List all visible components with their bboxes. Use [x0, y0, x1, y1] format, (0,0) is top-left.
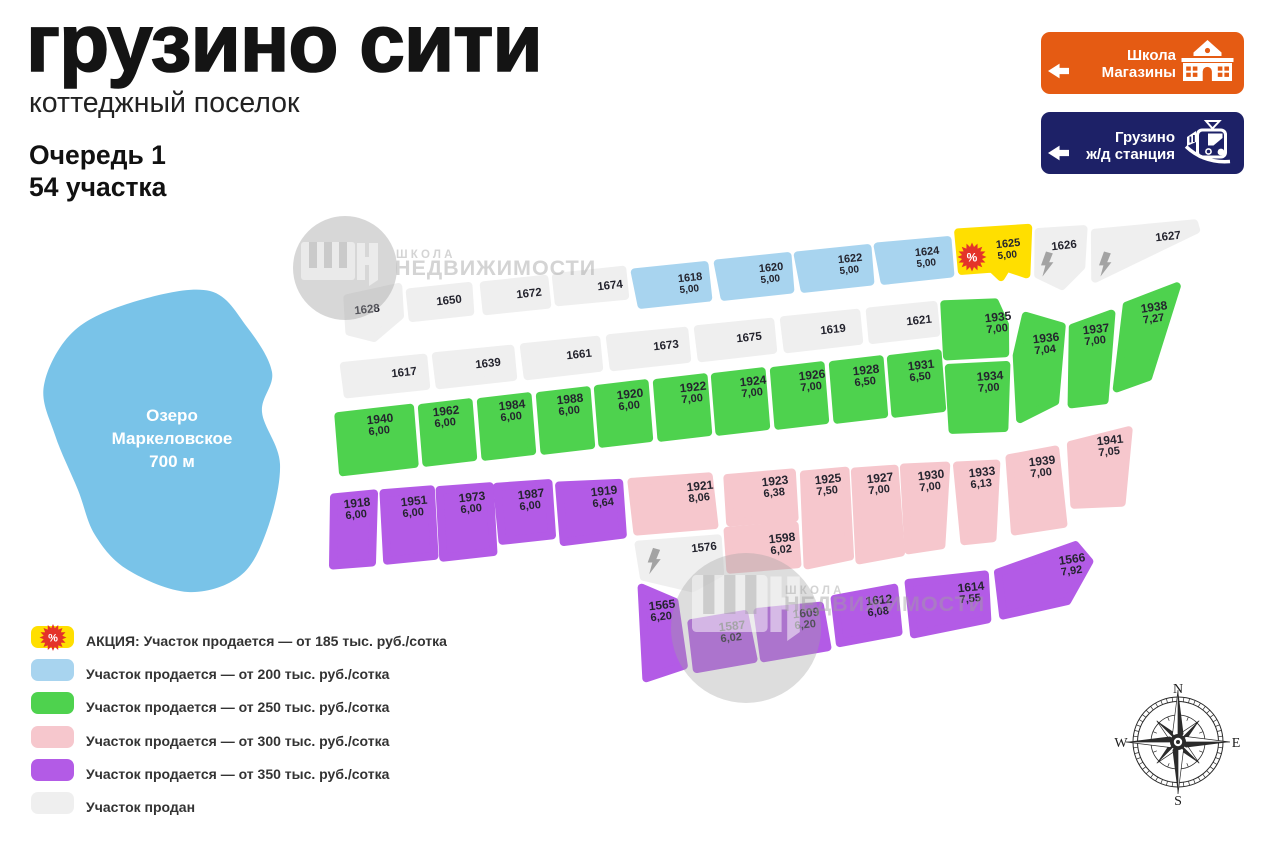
svg-text:Школа: Школа [1127, 47, 1177, 64]
svg-text:N: N [1173, 682, 1183, 697]
svg-text:грузино сити: грузино сити [26, 0, 542, 89]
svg-text:Участок продается — от 300 тыс: Участок продается — от 300 тыс. руб./сот… [86, 733, 390, 749]
svg-text:S: S [1174, 794, 1182, 809]
svg-text:W: W [1114, 736, 1128, 751]
svg-text:E: E [1232, 736, 1241, 751]
svg-text:Участок продается — от 250 тыс: Участок продается — от 250 тыс. руб./сот… [86, 699, 390, 715]
svg-text:ж/д станция: ж/д станция [1085, 146, 1175, 163]
svg-text:коттеджный поселок: коттеджный поселок [29, 87, 300, 119]
svg-text:Очередь 1: Очередь 1 [29, 140, 166, 170]
svg-text:%: % [48, 633, 58, 645]
svg-text:Грузино: Грузино [1115, 129, 1175, 146]
svg-text:%: % [967, 250, 978, 264]
svg-text:НЕДВИЖИМОСТИ: НЕДВИЖИМОСТИ [784, 592, 985, 616]
svg-text:54 участка: 54 участка [29, 172, 167, 202]
svg-text:НЕДВИЖИМОСТИ: НЕДВИЖИМОСТИ [395, 256, 596, 280]
svg-text:Участок продан: Участок продан [86, 799, 195, 815]
svg-text:Магазины: Магазины [1102, 64, 1176, 81]
svg-text:АКЦИЯ: Участок продается — от: АКЦИЯ: Участок продается — от 185 тыс. р… [86, 633, 447, 649]
svg-text:Участок продается — от 200 тыс: Участок продается — от 200 тыс. руб./сот… [86, 666, 390, 682]
svg-text:Участок продается — от 350 тыс: Участок продается — от 350 тыс. руб./сот… [86, 766, 390, 782]
